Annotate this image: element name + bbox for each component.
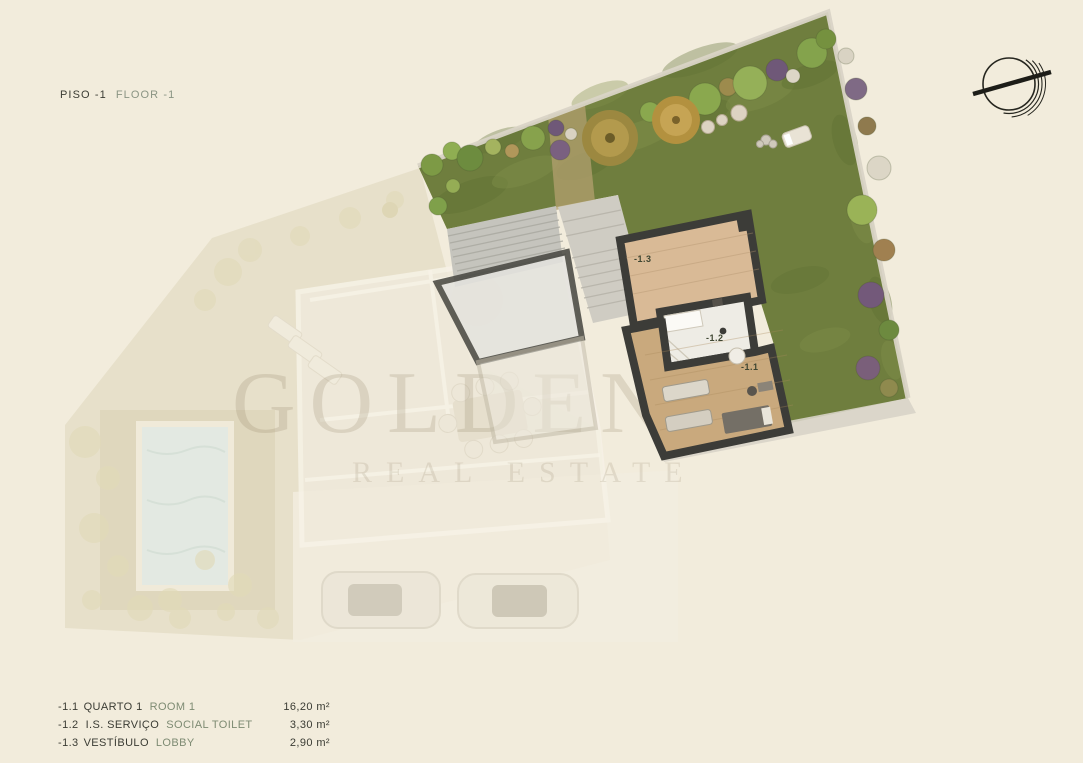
legend-row-room1: -1.1 QUARTO 1 ROOM 1 16,20 m² xyxy=(58,701,330,719)
legend-name-en: LOBBY xyxy=(156,737,195,749)
legend-name-pt: QUARTO 1 xyxy=(84,701,143,713)
legend-code: -1.1 xyxy=(58,701,79,713)
room-label-bedroom: -1.1 xyxy=(741,362,759,372)
legend-area: 2,90 m² xyxy=(290,737,330,749)
legend-row-social-toilet: -1.2 I.S. SERVIÇO SOCIAL TOILET 3,30 m² xyxy=(58,719,330,737)
legend-name-pt: VESTÍBULO xyxy=(84,737,149,749)
ornamental-tree xyxy=(582,110,638,166)
ornamental-tree xyxy=(652,96,700,144)
floor-plan-page: GOLDEN H REAL ESTATE xyxy=(0,0,1083,763)
legend-name-en: ROOM 1 xyxy=(150,701,196,713)
page-title-pt: PISO -1 xyxy=(60,89,107,101)
legend-code: -1.3 xyxy=(58,737,79,749)
ghost-car xyxy=(322,572,440,628)
circle-slash-monogram-icon xyxy=(953,30,1065,134)
legend-row-lobby: -1.3 VESTÍBULO LOBBY 2,90 m² xyxy=(58,737,330,755)
legend-area: 16,20 m² xyxy=(283,701,330,713)
legend-name-pt: I.S. SERVIÇO xyxy=(86,719,160,731)
watermark-line2: REAL ESTATE xyxy=(352,456,697,489)
room-label-toilet: -1.2 xyxy=(706,333,724,343)
page-title-en: FLOOR -1 xyxy=(116,89,176,101)
legend-area: 3,30 m² xyxy=(290,719,330,731)
page-title: PISO -1FLOOR -1 xyxy=(60,89,175,101)
legend-code: -1.2 xyxy=(58,719,79,731)
ghost-car xyxy=(458,574,578,628)
legend-name-en: SOCIAL TOILET xyxy=(166,719,252,731)
site-plan-graphic: GOLDEN H REAL ESTATE xyxy=(0,0,1083,763)
room-label-vestibule: -1.3 xyxy=(634,254,652,264)
room-legend: -1.1 QUARTO 1 ROOM 1 16,20 m² -1.2 I.S. … xyxy=(58,701,330,755)
